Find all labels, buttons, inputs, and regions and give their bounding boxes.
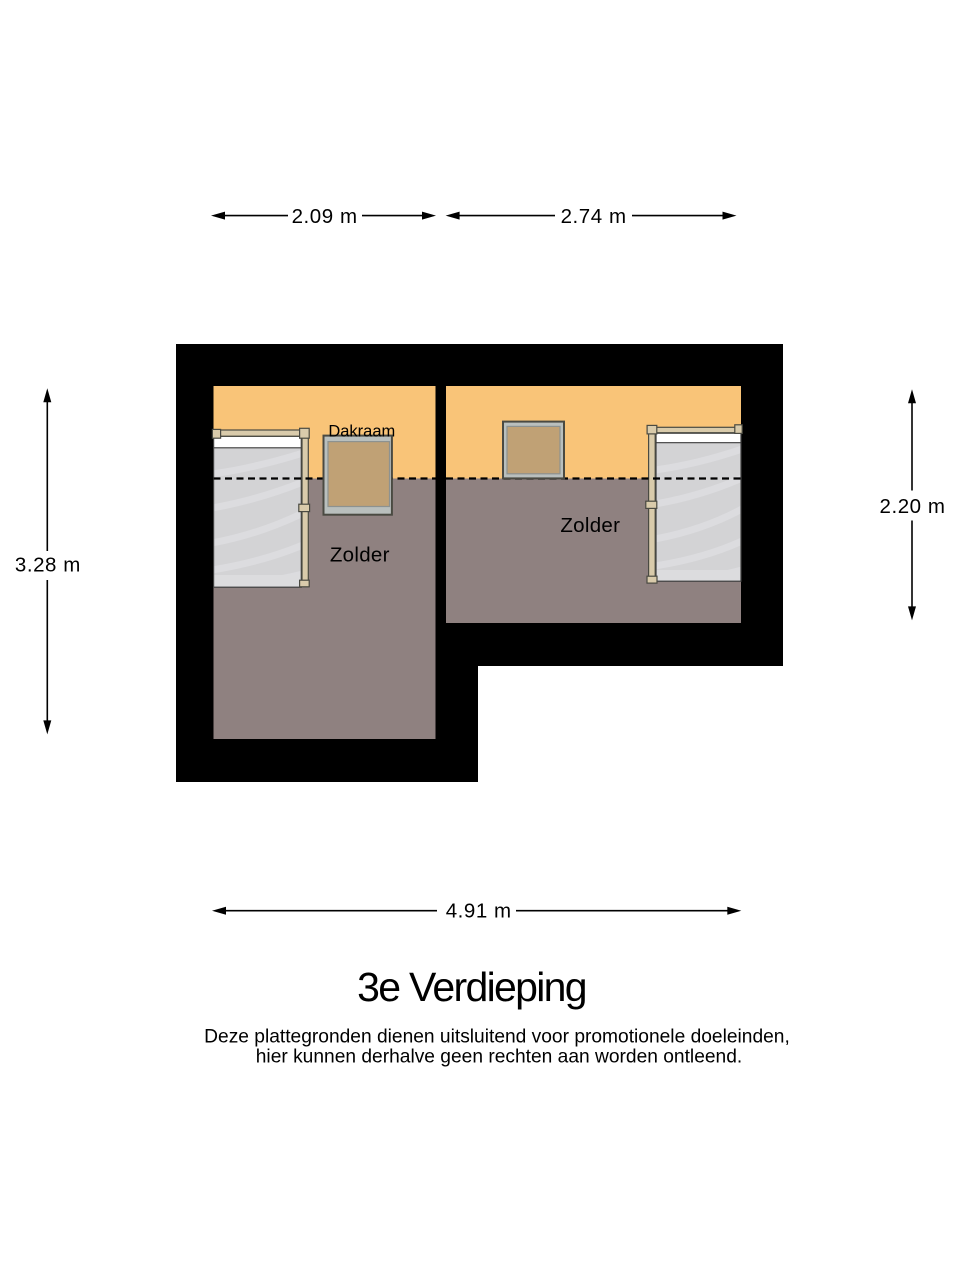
svg-text:2.20 m: 2.20 m: [880, 495, 946, 518]
svg-text:2.09 m: 2.09 m: [292, 205, 358, 228]
svg-text:Dakraam: Dakraam: [328, 422, 395, 440]
svg-text:4.91 m: 4.91 m: [446, 899, 512, 922]
svg-text:Zolder: Zolder: [330, 544, 390, 567]
svg-text:3.28 m: 3.28 m: [15, 554, 81, 577]
svg-text:hier kunnen derhalve geen rech: hier kunnen derhalve geen rechten aan wo…: [256, 1047, 742, 1068]
svg-text:2.74 m: 2.74 m: [561, 205, 627, 228]
svg-text:Zolder: Zolder: [560, 514, 620, 537]
svg-text:Deze plattegronden dienen uits: Deze plattegronden dienen uitsluitend vo…: [204, 1027, 790, 1048]
svg-text:3e Verdieping: 3e Verdieping: [357, 964, 586, 1010]
